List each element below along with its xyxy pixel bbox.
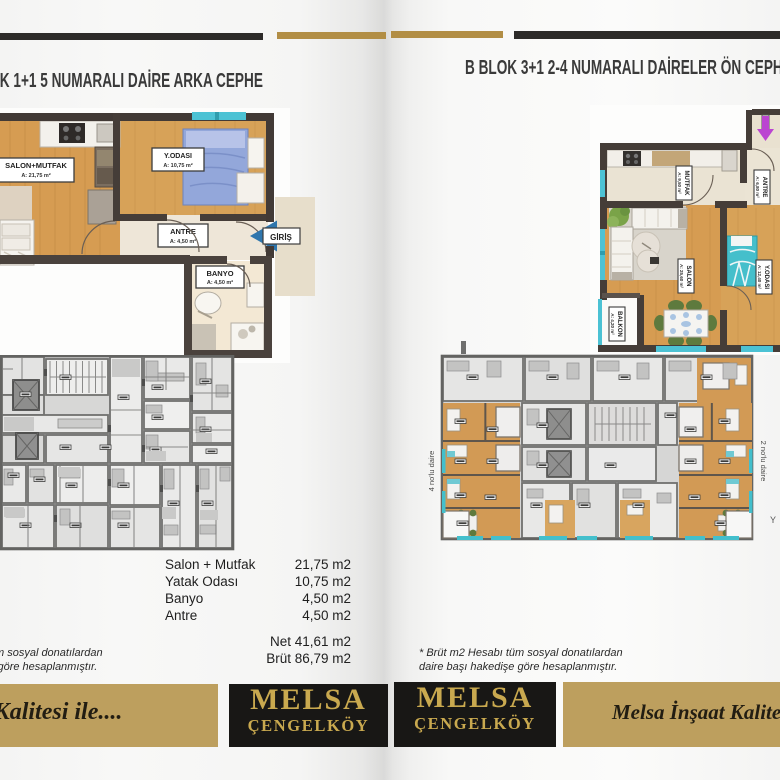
svg-text:BALKON: BALKON [616, 311, 622, 337]
svg-text:A: 25,60 m²: A: 25,60 m² [679, 264, 684, 289]
svg-text:A: 21,75 m²: A: 21,75 m² [21, 172, 51, 179]
svg-text:BANYO: BANYO [206, 269, 233, 278]
svg-text:A: 6,80 m²: A: 6,80 m² [755, 176, 760, 198]
svg-text:A: 9,50 m²: A: 9,50 m² [677, 172, 682, 194]
svg-text:ANTRE: ANTRE [761, 177, 767, 198]
svg-text:GİRİŞ: GİRİŞ [270, 233, 292, 242]
svg-text:4 no'lu daire: 4 no'lu daire [427, 451, 436, 492]
svg-text:A: 4,50 m²: A: 4,50 m² [207, 279, 233, 286]
svg-text:Y.ODASI: Y.ODASI [164, 153, 192, 160]
svg-text:A: 4,20 m²: A: 4,20 m² [610, 313, 615, 335]
svg-text:A: 10,75 m²: A: 10,75 m² [163, 162, 193, 169]
svg-text:Y.ODASI: Y.ODASI [763, 265, 769, 289]
svg-text:A: 4,50 m²: A: 4,50 m² [170, 238, 196, 245]
svg-text:SALON+MUTFAK: SALON+MUTFAK [5, 161, 67, 170]
svg-text:SALON: SALON [685, 266, 691, 287]
svg-text:2 no'lu daire: 2 no'lu daire [759, 441, 768, 482]
svg-text:A: 12,40 m²: A: 12,40 m² [757, 265, 762, 290]
svg-text:MUTFAK: MUTFAK [683, 171, 689, 197]
